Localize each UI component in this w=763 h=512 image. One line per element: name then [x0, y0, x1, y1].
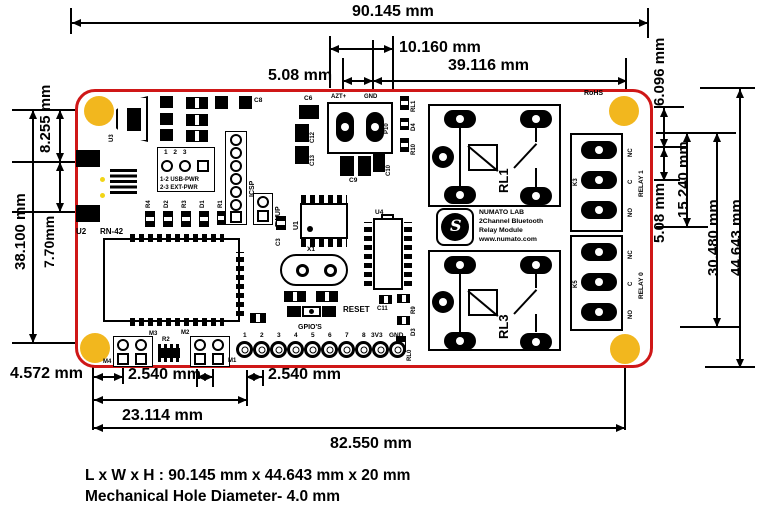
r2-pins — [158, 358, 180, 362]
mechanical-drawing: 90.145 mm 10.160 mm 5.08 mm 39.116 mm 6.… — [0, 0, 763, 512]
ext-line — [700, 87, 755, 89]
gpio-pin-3: 3 — [277, 333, 281, 340]
dim-39116: 39.116 mm — [448, 58, 529, 74]
k5-contact-no: NO — [628, 310, 634, 319]
ext-line — [12, 342, 84, 344]
relay0-silk-label: RELAY 0 — [639, 272, 646, 299]
k3-contact-c: C — [628, 180, 634, 184]
icsp-pad — [230, 199, 242, 211]
smd-part — [217, 211, 225, 225]
via-dot — [100, 177, 105, 182]
ref-c10: C10 — [386, 165, 392, 176]
m2-pad — [212, 353, 224, 365]
gpio-pad — [253, 341, 270, 358]
m4-pad — [135, 339, 147, 351]
bt-module-pins-right — [236, 252, 244, 316]
dim-2540-b: 2.540 mm — [268, 367, 341, 383]
logo-line2: 2Channel Bluetooth — [479, 219, 543, 226]
relay3-pad — [444, 332, 476, 350]
ref-k5: K5 — [573, 280, 579, 288]
ext-line — [372, 40, 374, 96]
u4-pins-left — [364, 222, 372, 286]
ref-m1: M1 — [228, 358, 236, 364]
k5-pin — [581, 303, 617, 321]
jumper-pad-2 — [179, 160, 191, 172]
ref-d1: D1 — [200, 200, 206, 208]
gpio-pad — [304, 341, 321, 358]
smd-part — [316, 291, 338, 302]
smd-part — [215, 96, 228, 109]
k5-pin — [581, 243, 617, 261]
dim-overall-width: 90.145 mm — [352, 4, 434, 20]
footer-dimensions-text: L x W x H : 90.145 mm x 44.643 mm x 20 m… — [85, 468, 410, 484]
dim-23114-line — [94, 399, 247, 401]
jumper-pad-1 — [161, 160, 173, 172]
fwup-pad — [257, 210, 269, 222]
icsp-pad — [230, 173, 242, 185]
ref-d3: D3 — [411, 328, 417, 336]
m4-pad — [135, 353, 147, 365]
x1-pad — [324, 264, 337, 277]
relay1-coil-wire — [459, 126, 461, 188]
smd-part — [181, 211, 191, 227]
smd-part — [186, 114, 208, 126]
ref-rl1s: RL1 — [411, 101, 417, 112]
ext-line — [680, 326, 740, 328]
relay1-switch-stub — [535, 126, 537, 142]
dim-770: 7.70mm — [42, 216, 56, 268]
smd-part — [299, 105, 319, 119]
smd-part — [295, 146, 309, 164]
r2-body — [158, 348, 180, 358]
relay3-coil-wire — [459, 272, 461, 334]
dim-82550-line — [94, 427, 625, 429]
gpio-pad — [236, 341, 253, 358]
relay1-pad — [432, 146, 454, 168]
ref-c6: C6 — [304, 96, 312, 103]
icsp-pad — [230, 134, 242, 146]
gpio-pad — [338, 341, 355, 358]
ref-m2: M2 — [181, 330, 189, 336]
ref-c13: C13 — [310, 155, 316, 166]
ref-r2: R2 — [162, 337, 170, 343]
dim-6096-line — [663, 108, 665, 148]
m4-pad — [117, 353, 129, 365]
x1-crystal — [280, 254, 348, 286]
mount-hole-tr — [609, 96, 639, 126]
ref-c11: C11 — [377, 306, 388, 312]
smd-part — [397, 294, 410, 303]
ref-r10: R10 — [411, 144, 417, 155]
u1-body — [300, 203, 348, 239]
mount-hole-br — [610, 334, 640, 364]
dim-6096: 6.096 mm — [652, 38, 667, 106]
smd-part — [145, 211, 155, 227]
dim-overall-width-line — [72, 22, 648, 24]
icsp-pad — [230, 160, 242, 172]
ext-line — [705, 366, 755, 368]
jumper-pin-numbers: 1 2 3 — [164, 150, 188, 157]
gpio-pin-4: 4 — [294, 333, 298, 340]
smd-part — [400, 96, 409, 110]
k3-pin — [581, 141, 617, 159]
smd-part — [186, 130, 208, 142]
ref-c3: C3 — [276, 238, 282, 246]
dim-10160: 10.160 mm — [399, 40, 481, 56]
relay1-pad — [520, 187, 552, 205]
smd-part — [160, 96, 173, 108]
ref-r1: R1 — [218, 200, 224, 208]
terminal-pos-label: AZT+ — [331, 94, 346, 100]
gpio-pin-1: 1 — [243, 333, 247, 340]
smd-part — [199, 211, 209, 227]
smd-part — [160, 129, 173, 141]
m2-pad — [194, 353, 206, 365]
relay3-switch-stub — [535, 314, 537, 332]
k5-pin — [581, 273, 617, 291]
ref-r9: R9 — [411, 306, 417, 314]
gpio-pin-2: 2 — [260, 333, 264, 340]
jumper-ext-pwr: 2-3 EXT-PWR — [160, 185, 198, 191]
jumper-usb-pwr: 1-2 USB-PWR — [160, 177, 199, 183]
dim-8255-line — [59, 110, 61, 162]
relay3-pad — [432, 291, 454, 313]
usb-conn-pins — [110, 169, 137, 194]
icsp-pad — [230, 186, 242, 198]
ref-p10: P10 — [384, 123, 390, 134]
logo-line4: www.numato.com — [479, 237, 537, 244]
u4-body — [373, 218, 403, 290]
ref-rl0: RL0 — [407, 350, 413, 361]
smd-part — [373, 154, 385, 172]
ref-u1: U1 — [293, 221, 300, 230]
smd-part — [400, 118, 409, 130]
ext-line — [12, 161, 80, 163]
dim-2540-a: 2.540 mm — [128, 367, 201, 383]
gpio-pad — [321, 341, 338, 358]
terminal-pin — [366, 112, 384, 142]
gpio-pad — [389, 341, 406, 358]
smd-part — [400, 138, 409, 152]
k3-contact-no: NO — [628, 208, 634, 217]
dim-508-top-line — [343, 80, 373, 82]
u1-pin1-dot — [307, 226, 313, 232]
terminal-gnd-label: GND — [364, 94, 377, 100]
dim-44643: 44.643 mm — [729, 199, 744, 276]
gpio-pin-5: 5 — [311, 333, 315, 340]
dim-4572-line — [94, 376, 123, 378]
bt-module-outline — [103, 238, 240, 322]
dim-38100: 38.100 mm — [13, 193, 28, 270]
relay3-switch-stub — [535, 272, 537, 288]
dim-2540-a-line — [197, 376, 213, 378]
dim-508-right-line — [663, 148, 665, 181]
smd-part — [295, 124, 309, 142]
numato-logo-mark: S — [450, 218, 462, 234]
rohs-label: RoHS — [584, 90, 603, 97]
footer-hole-diameter-text: Mechanical Hole Diameter- 4.0 mm — [85, 489, 340, 505]
bt-module-name: RN-42 — [100, 228, 123, 236]
dim-82550: 82.550 mm — [330, 436, 412, 452]
u1-pins-top — [301, 195, 347, 203]
dim-15240: 15.240 mm — [676, 141, 691, 218]
gpio-pin-gnd: GND — [389, 333, 403, 340]
relay3-pad — [520, 333, 552, 351]
gpio-pad — [355, 341, 372, 358]
relay1-silk-label: RELAY 1 — [639, 170, 646, 197]
reset-button-dot — [309, 309, 314, 314]
k5-contact-c: C — [628, 282, 634, 286]
usb-conn-pad — [76, 150, 100, 167]
ref-d4: D4 — [411, 123, 417, 131]
m2-pad — [212, 339, 224, 351]
ref-c9: C9 — [349, 178, 357, 185]
relay1-ref: RL1 — [497, 168, 510, 193]
gpio-pad — [270, 341, 287, 358]
dim-4572: 4.572 mm — [10, 366, 83, 382]
gpio-pin-3v3: 3V3 — [371, 333, 383, 340]
dim-2540-b-line — [246, 376, 262, 378]
mount-hole-tl — [84, 96, 114, 126]
k3-pin — [581, 201, 617, 219]
smd-part — [379, 295, 392, 304]
smd-part — [160, 113, 173, 125]
reset-button-pad — [287, 306, 301, 317]
dim-770-line — [59, 162, 61, 212]
dim-508-top: 5.08 mm — [268, 68, 332, 84]
m4-pad — [117, 339, 129, 351]
ext-line — [654, 106, 684, 108]
smd-part — [186, 97, 208, 109]
fwup-pad — [257, 196, 269, 208]
gpio-pin-6: 6 — [328, 333, 332, 340]
gpio-pin-8: 8 — [362, 333, 366, 340]
jumper-pad-3 — [197, 160, 209, 172]
ref-c12: C12 — [310, 132, 316, 143]
smd-part — [250, 313, 266, 323]
ref-r3: R3 — [182, 200, 188, 208]
logo-line1: NUMATO LAB — [479, 210, 524, 217]
usb-ref-label: U3 — [109, 134, 115, 142]
ref-u2: U2 — [76, 228, 86, 236]
ref-k3: K3 — [573, 178, 579, 186]
x1-pad — [296, 264, 309, 277]
ext-line — [656, 132, 736, 134]
k3-contact-nc: NC — [628, 148, 634, 157]
icsp-pad — [230, 211, 242, 223]
icsp-pad — [230, 147, 242, 159]
k3-pin — [581, 171, 617, 189]
smd-part — [163, 211, 173, 227]
smd-part — [276, 216, 286, 230]
gpio-pad — [287, 341, 304, 358]
reset-label: RESET — [343, 306, 370, 314]
gpio-title: GPIO'S — [298, 324, 322, 331]
gpio-pin-7: 7 — [345, 333, 349, 340]
ref-c8: C8 — [254, 98, 262, 105]
reset-button-pad — [322, 306, 336, 317]
dim-23114: 23.114 mm — [122, 408, 203, 424]
bt-module-pins-top — [130, 234, 224, 242]
u4-pins-right — [404, 222, 412, 286]
dim-8255: 8.255 mm — [38, 85, 53, 153]
m2-pad — [194, 339, 206, 351]
usb-plug-contact — [127, 108, 141, 131]
smd-part — [340, 156, 354, 176]
ref-d2: D2 — [164, 200, 170, 208]
dim-38100-line — [32, 110, 34, 343]
k5-contact-nc: NC — [628, 250, 634, 259]
ref-m4: M4 — [103, 359, 111, 365]
terminal-pin — [336, 112, 354, 142]
dim-39116-line — [373, 80, 627, 82]
dim-30480: 30.480 mm — [706, 199, 721, 276]
smd-part — [397, 316, 410, 325]
bt-module-pins-bottom — [130, 318, 224, 326]
dim-10160-line — [330, 48, 393, 50]
gpio-pad — [372, 341, 389, 358]
smd-part — [358, 156, 371, 176]
smd-part — [239, 96, 252, 109]
dim-508-right: 5.08 mm — [652, 183, 667, 243]
ref-x1: X1 — [307, 247, 315, 254]
ext-line — [262, 370, 264, 386]
logo-line3: Relay Module — [479, 228, 523, 235]
relay1-switch-stub — [535, 168, 537, 188]
usb-conn-pad — [76, 205, 100, 222]
relay3-ref: RL3 — [497, 314, 510, 339]
ref-r4: R4 — [146, 200, 152, 208]
smd-part — [284, 291, 306, 302]
relay1-pad — [444, 186, 476, 204]
via-dot — [100, 193, 105, 198]
